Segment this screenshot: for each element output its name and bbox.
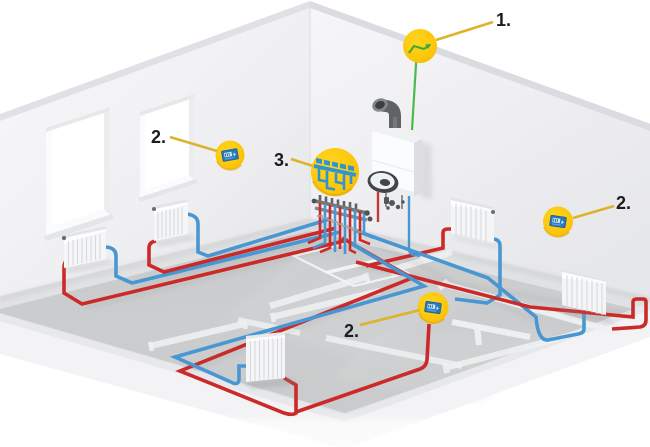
svg-text:3.: 3. (274, 150, 289, 170)
svg-text:2.: 2. (344, 321, 359, 341)
svg-text:1.: 1. (496, 10, 511, 30)
svg-text:2.: 2. (151, 127, 166, 147)
svg-text:2.: 2. (616, 193, 631, 213)
